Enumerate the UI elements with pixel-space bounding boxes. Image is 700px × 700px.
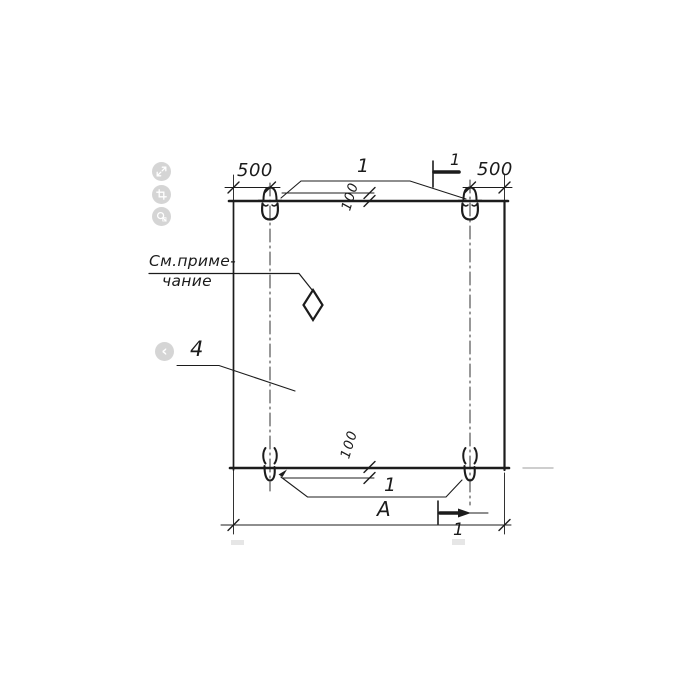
callout-panel-label: 4 [190, 339, 203, 360]
crop-button[interactable] [152, 185, 171, 204]
expand-icon [156, 166, 167, 177]
chevron-left-icon: ‹ [161, 342, 167, 360]
search-fragment-button[interactable] [152, 207, 171, 226]
dim-100-bottom [279, 462, 376, 484]
note-label-line1: См.приме- [149, 254, 236, 270]
dim-100-top [282, 188, 375, 207]
previous-image-button[interactable]: ‹ [155, 342, 174, 361]
dim-500-left-label: 500 [237, 162, 273, 180]
crop-icon [156, 189, 167, 200]
loop-axis-lines [270, 180, 470, 505]
leader-loops-bottom [281, 477, 462, 497]
note-label-line2: чание [162, 274, 212, 290]
dim-500-right-label: 500 [477, 161, 513, 179]
drawing-sheet: 500 500 1 1 100 См.приме- чание 4 100 1 … [0, 0, 700, 700]
expand-button[interactable] [152, 162, 171, 181]
diamond-symbol [304, 290, 323, 320]
search-fragment-icon [156, 211, 167, 222]
section-bottom-label: 1 [453, 522, 464, 539]
callout-loops-bottom-label: 1 [384, 476, 396, 495]
section-top-label: 1 [450, 152, 460, 168]
callout-loops-top-label: 1 [357, 157, 369, 176]
callout-4-leader [177, 366, 295, 392]
panel-outline [229, 201, 509, 470]
panel-drawing [0, 0, 700, 700]
scan-artifact-smudge [231, 540, 244, 545]
dim-width-label: А [377, 499, 391, 519]
